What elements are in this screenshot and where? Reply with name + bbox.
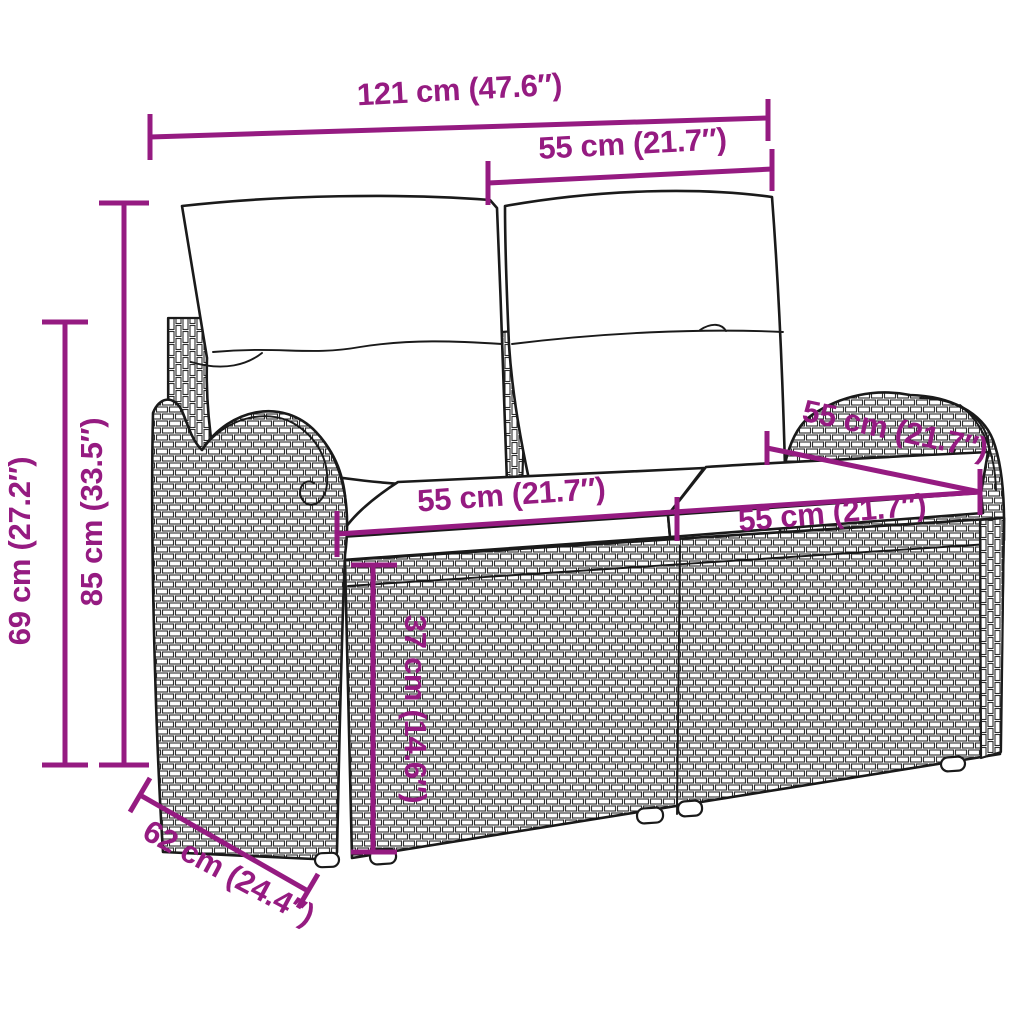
dimension-label: 55 cm (21.7″)	[537, 121, 727, 166]
back-cushion-right	[505, 191, 785, 493]
left-armrest	[152, 400, 347, 860]
dimension-label: 121 cm (47.6″)	[356, 67, 563, 113]
base-front	[345, 518, 1004, 858]
dimension-tick	[130, 778, 150, 812]
dimension-back-height: 85 cm (33.5″)	[74, 203, 149, 765]
dimension-label: 85 cm (33.5″)	[74, 418, 109, 606]
bench-foot	[637, 807, 664, 824]
bench-foot	[678, 800, 703, 817]
dimension-label: 69 cm (27.2″)	[2, 457, 37, 645]
base-right-corner-post	[980, 518, 1004, 758]
dimension-line	[488, 169, 772, 183]
bench-illustration	[152, 191, 1004, 867]
bench-foot	[315, 853, 339, 868]
product-dimension-diagram: 121 cm (47.6″) 55 cm (21.7″) 85 cm (33.5…	[0, 0, 1024, 1024]
bench-foot	[941, 756, 966, 772]
dimension-label: 37 cm (14.6″)	[398, 615, 433, 803]
